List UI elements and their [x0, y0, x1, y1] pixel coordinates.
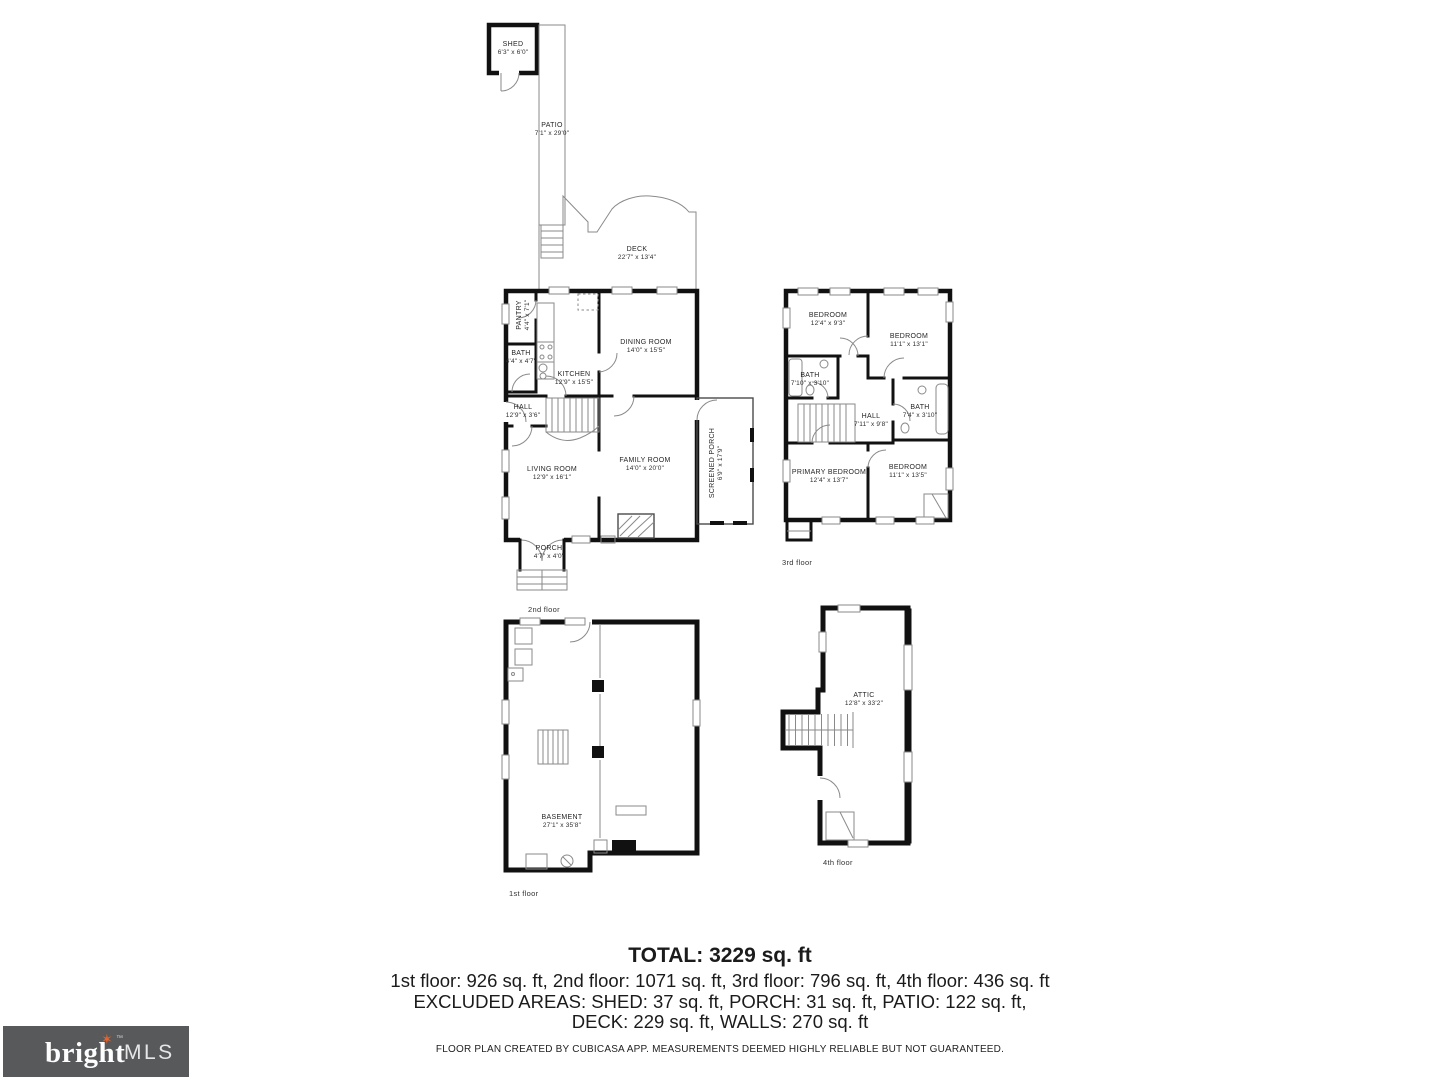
room-label-living-room: LIVING ROOM 12'9" x 16'1" [527, 465, 577, 483]
room-name: BEDROOM [809, 311, 847, 320]
room-label-hall-2f: HALL 12'9" x 3'6" [506, 403, 540, 421]
excluded-areas-line-2: DECK: 229 sq. ft, WALLS: 270 sq. ft [0, 1012, 1440, 1033]
room-label-bath-3f-left: BATH 7'10" x 3'10" [791, 371, 829, 389]
room-name: FAMILY ROOM [619, 456, 670, 465]
room-label-bath-2f: BATH 4'4" x 4'7" [506, 349, 537, 367]
room-label-bedroom-3f-se: BEDROOM 11'1" x 13'5" [889, 463, 927, 481]
room-name: PORCH [534, 544, 565, 553]
room-label-porch: PORCH 4'7" x 4'0" [534, 544, 565, 562]
floor-plan-drawing [0, 0, 1440, 1080]
logo-spark-icon: ✶ [101, 1031, 113, 1048]
room-dims: 4'7" x 4'0" [534, 553, 565, 562]
room-dims: 27'1" x 35'8" [542, 822, 583, 831]
room-dims: 4'4" x 7'1" [524, 300, 533, 331]
room-label-patio: PATIO 7'1" x 29'0" [535, 121, 569, 139]
room-label-dining-room: DINING ROOM 14'0" x 15'5" [620, 338, 672, 356]
floor-caption-third: 3rd floor [782, 558, 812, 567]
room-name: DINING ROOM [620, 338, 672, 347]
room-label-hall-3f: HALL 7'11" x 9'8" [854, 412, 888, 430]
logo-brand-text: bright [45, 1039, 125, 1068]
area-summary: TOTAL: 3229 sq. ft 1st floor: 926 sq. ft… [0, 944, 1440, 1033]
logo-mls-text: MLS [124, 1041, 175, 1065]
deck-plan [539, 196, 696, 289]
room-name: ATTIC [845, 691, 883, 700]
room-name: BEDROOM [889, 463, 927, 472]
room-name: BATH [506, 349, 537, 358]
room-dims: 12'9" x 15'5" [555, 379, 593, 388]
bright-mls-logo: bright ✶ ™ MLS [3, 1026, 189, 1077]
room-name: BASEMENT [542, 813, 583, 822]
room-name: KITCHEN [555, 370, 593, 379]
room-name: SCREENED PORCH [708, 428, 717, 498]
room-label-pantry: PANTRY 4'4" x 7'1" [515, 300, 533, 331]
room-name: BATH [791, 371, 829, 380]
floor-caption-first: 1st floor [509, 889, 538, 898]
floor-areas-line: 1st floor: 926 sq. ft, 2nd floor: 1071 s… [0, 971, 1440, 992]
room-label-screened-porch: SCREENED PORCH 6'9" x 17'9" [708, 428, 726, 498]
room-name: HALL [854, 412, 888, 421]
room-name: LIVING ROOM [527, 465, 577, 474]
room-label-bedroom-3f-ne: BEDROOM 11'1" x 13'1" [890, 332, 928, 350]
room-dims: 7'4" x 3'10" [903, 412, 937, 421]
room-name: BATH [903, 403, 937, 412]
disclaimer-text: FLOOR PLAN CREATED BY CUBICASA APP. MEAS… [0, 1044, 1440, 1055]
floor-plan-page: SHED 6'3" x 6'0" PATIO 7'1" x 29'0" DECK… [0, 0, 1440, 1080]
room-name: SHED [498, 40, 529, 49]
room-label-basement: BASEMENT 27'1" x 35'8" [542, 813, 583, 831]
fourth-floor-plan [783, 605, 912, 847]
room-dims: 14'0" x 20'0" [619, 465, 670, 474]
total-area: TOTAL: 3229 sq. ft [0, 944, 1440, 968]
room-name: PANTRY [515, 300, 524, 331]
logo-trademark: ™ [116, 1035, 123, 1042]
room-dims: 12'4" x 9'3" [809, 320, 847, 329]
room-label-primary-bedroom: PRIMARY BEDROOM 12'4" x 13'7" [792, 468, 866, 486]
room-name: HALL [506, 403, 540, 412]
excluded-areas-line-1: EXCLUDED AREAS: SHED: 37 sq. ft, PORCH: … [0, 992, 1440, 1013]
room-dims: 11'1" x 13'1" [890, 341, 928, 350]
room-label-deck: DECK 22'7" x 13'4" [618, 245, 656, 263]
room-dims: 12'9" x 16'1" [527, 474, 577, 483]
room-label-bedroom-3f-nw: BEDROOM 12'4" x 9'3" [809, 311, 847, 329]
room-name: DECK [618, 245, 656, 254]
room-dims: 12'4" x 13'7" [792, 477, 866, 486]
room-dims: 7'11" x 9'8" [854, 421, 888, 430]
room-dims: 14'0" x 15'5" [620, 347, 672, 356]
room-name: PRIMARY BEDROOM [792, 468, 866, 477]
room-label-shed: SHED 6'3" x 6'0" [498, 40, 529, 58]
first-floor-plan [502, 618, 700, 870]
room-label-kitchen: KITCHEN 12'9" x 15'5" [555, 370, 593, 388]
room-dims: 12'9" x 3'6" [506, 412, 540, 421]
room-dims: 22'7" x 13'4" [618, 254, 656, 263]
room-dims: 12'8" x 33'2" [845, 700, 883, 709]
room-label-bath-3f-right: BATH 7'4" x 3'10" [903, 403, 937, 421]
floor-caption-second: 2nd floor [528, 605, 560, 614]
room-dims: 4'4" x 4'7" [506, 358, 537, 367]
room-dims: 11'1" x 13'5" [889, 472, 927, 481]
room-dims: 7'10" x 3'10" [791, 380, 829, 389]
room-name: BEDROOM [890, 332, 928, 341]
room-label-attic: ATTIC 12'8" x 33'2" [845, 691, 883, 709]
room-dims: 7'1" x 29'0" [535, 130, 569, 139]
floor-caption-fourth: 4th floor [823, 858, 853, 867]
room-dims: 6'9" x 17'9" [717, 428, 726, 498]
room-label-family-room: FAMILY ROOM 14'0" x 20'0" [619, 456, 670, 474]
room-dims: 6'3" x 6'0" [498, 49, 529, 58]
room-name: PATIO [535, 121, 569, 130]
